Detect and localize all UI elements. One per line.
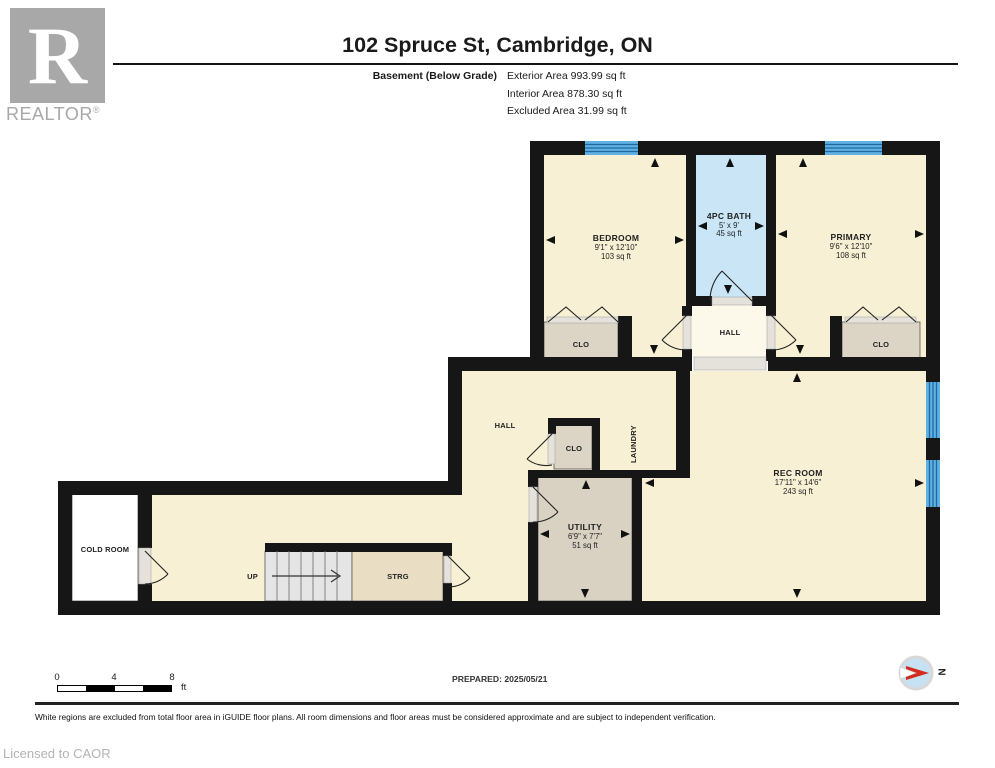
scale-bar: 0 4 8 ft <box>40 672 240 698</box>
utility-area: 51 sq ft <box>572 541 598 550</box>
bedroom-closet-label: CLO <box>573 340 589 349</box>
upper-hall-label: HALL <box>720 328 741 337</box>
rec-room-label: REC ROOM <box>773 468 822 478</box>
footer-divider <box>35 702 959 705</box>
laundry-label: LAUNDRY <box>629 425 638 463</box>
scale-unit: ft <box>181 682 186 693</box>
storage-label: STRG <box>387 572 409 581</box>
primary-label: PRIMARY <box>831 232 872 242</box>
bath-area: 45 sq ft <box>716 229 742 238</box>
cold-room-label: COLD ROOM <box>81 545 129 554</box>
window-icon <box>926 382 940 438</box>
scale-bar-segments <box>57 685 172 692</box>
primary-dims: 9'6" x 12'10" <box>830 242 873 251</box>
scale-tick-0: 0 <box>49 672 65 683</box>
window-icon <box>926 460 940 507</box>
hall-closet-label: CLO <box>566 444 582 453</box>
primary-area: 108 sq ft <box>836 251 867 260</box>
primary-closet-label: CLO <box>873 340 889 349</box>
rec-room-area: 243 sq ft <box>783 487 814 496</box>
bedroom-area: 103 sq ft <box>601 252 632 261</box>
compass-n-label: N <box>935 668 946 675</box>
utility-label: UTILITY <box>568 522 602 532</box>
floor-plan-drawing: BEDROOM 9'1" x 12'10" 103 sq ft 4PC BATH… <box>0 0 995 768</box>
utility-dims: 6'9" x 7'7" <box>568 532 602 541</box>
window-icon <box>825 141 882 155</box>
bedroom-label: BEDROOM <box>593 233 640 243</box>
prepared-date: PREPARED: 2025/05/21 <box>452 674 547 684</box>
compass-north-icon: N <box>894 652 950 698</box>
bedroom-dims: 9'1" x 12'10" <box>595 243 638 252</box>
licensed-to: Licensed to CAOR <box>3 746 111 761</box>
stairs-up-label: UP <box>247 572 258 581</box>
lower-hall-label: HALL <box>495 421 516 430</box>
window-icon <box>585 141 638 155</box>
scale-tick-4: 4 <box>106 672 122 683</box>
scale-tick-8: 8 <box>164 672 180 683</box>
disclaimer-text: White regions are excluded from total fl… <box>35 712 965 722</box>
bath-label: 4PC BATH <box>707 211 751 221</box>
floor-plan-page: R REALTOR® 102 Spruce St, Cambridge, ON … <box>0 0 995 768</box>
rec-room-dims: 17'11" x 14'6" <box>775 478 822 487</box>
